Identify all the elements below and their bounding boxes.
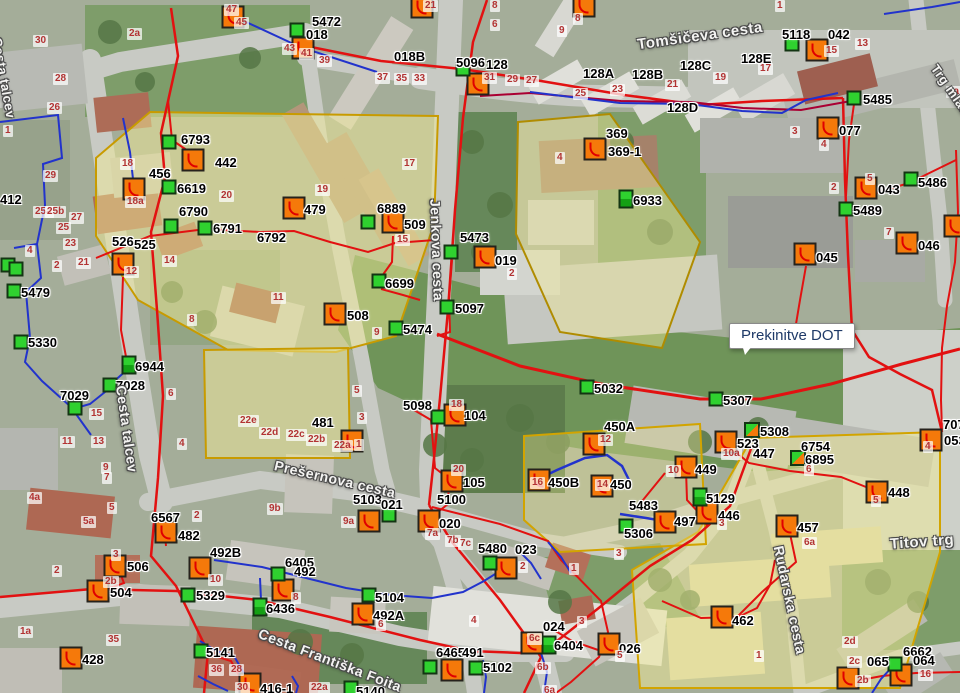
station-label: 492B xyxy=(210,545,241,560)
station-label: 5485 xyxy=(863,92,892,107)
valve-marker[interactable] xyxy=(162,180,177,195)
valve-marker[interactable] xyxy=(440,300,455,315)
station-label: 6792 xyxy=(257,230,286,245)
station-label: 450A xyxy=(604,419,635,434)
house-number-label: 18a xyxy=(125,196,146,208)
house-number-label: 6 xyxy=(490,19,500,31)
valve-marker[interactable] xyxy=(423,660,438,675)
house-number-label: 41 xyxy=(299,48,314,60)
valve-marker[interactable] xyxy=(469,661,484,676)
station-label: 497 xyxy=(674,514,696,529)
valve-marker[interactable] xyxy=(619,190,634,209)
house-number-label: 30 xyxy=(33,35,48,47)
station-label: 128B xyxy=(632,67,663,82)
street-label: Jenkova cesta xyxy=(427,199,447,302)
station-label: 456 xyxy=(149,166,171,181)
station-marker[interactable] xyxy=(495,557,518,580)
house-number-label: 4 xyxy=(177,438,187,450)
station-label: 5096 xyxy=(456,55,485,70)
house-number-label: 3 xyxy=(357,412,367,424)
station-label: 6465 xyxy=(436,645,465,660)
station-label: 5102 xyxy=(483,660,512,675)
house-number-label: 9 xyxy=(372,327,382,339)
station-label: 525 xyxy=(134,237,156,252)
station-label: 412 xyxy=(0,192,22,207)
valve-marker[interactable] xyxy=(839,202,854,217)
station-label: 6699 xyxy=(385,276,414,291)
station-label: 5100 xyxy=(437,492,466,507)
station-marker[interactable] xyxy=(60,647,83,670)
house-number-label: 29 xyxy=(43,170,58,182)
house-number-label: 5 xyxy=(352,385,362,397)
station-marker[interactable] xyxy=(352,603,375,626)
house-number-label: 22e xyxy=(238,415,259,427)
station-label: 449 xyxy=(695,462,717,477)
house-number-label: 8 xyxy=(187,314,197,326)
valve-marker[interactable] xyxy=(888,657,903,672)
street-label: Titov trg xyxy=(889,531,954,552)
house-number-label: 7 xyxy=(102,472,112,484)
station-label: 491 xyxy=(462,645,484,660)
house-number-label: 22a xyxy=(309,682,330,693)
station-label: 481 xyxy=(312,415,334,430)
house-number-label: 35 xyxy=(394,73,409,85)
station-label: 5479 xyxy=(21,285,50,300)
house-number-label: 5 xyxy=(871,495,881,507)
house-number-label: 21 xyxy=(76,257,91,269)
house-number-label: 3 xyxy=(111,549,121,561)
house-number-label: 12 xyxy=(124,266,139,278)
house-number-label: 17 xyxy=(402,158,417,170)
house-number-label: 8 xyxy=(573,13,583,25)
station-label: 369 xyxy=(606,126,628,141)
station-label: 5330 xyxy=(28,335,57,350)
house-number-label: 10 xyxy=(666,465,681,477)
house-number-label: 37 xyxy=(375,72,390,84)
station-label: 128C xyxy=(680,58,711,73)
station-label: 482 xyxy=(178,528,200,543)
house-number-label: 9 xyxy=(557,25,567,37)
station-label: 6933 xyxy=(633,193,662,208)
house-number-label: 1 xyxy=(354,439,364,451)
station-label: 046 xyxy=(918,238,940,253)
house-number-label: 1 xyxy=(569,563,579,575)
house-number-label: 18 xyxy=(449,399,464,411)
station-label: 5118 xyxy=(782,27,810,42)
valve-marker[interactable] xyxy=(181,588,196,603)
station-marker[interactable] xyxy=(182,149,205,172)
station-marker[interactable] xyxy=(324,303,347,326)
station-label: 5308 xyxy=(760,424,789,439)
house-number-label: 3 xyxy=(717,518,727,530)
station-label: 428 xyxy=(82,652,104,667)
station-marker[interactable] xyxy=(944,215,960,238)
station-label: 128D xyxy=(667,100,698,115)
house-number-label: 4 xyxy=(469,615,479,627)
station-label: 128 xyxy=(486,57,508,72)
house-number-label: 21 xyxy=(665,79,680,91)
station-marker[interactable] xyxy=(711,606,734,629)
street-label: Cesta talcev xyxy=(0,36,18,119)
station-label: 128A xyxy=(583,66,614,81)
house-number-label: 10 xyxy=(208,574,223,586)
house-number-label: 2d xyxy=(842,636,858,648)
house-number-label: 14 xyxy=(595,479,610,491)
station-label: 018 xyxy=(306,27,328,42)
valve-marker[interactable] xyxy=(389,321,404,336)
station-marker[interactable] xyxy=(441,659,464,682)
station-label: 6944 xyxy=(135,359,164,374)
house-number-label: 1a xyxy=(18,626,33,638)
house-number-label: 25b xyxy=(45,206,66,218)
station-label: 104 xyxy=(464,408,486,423)
valve-marker[interactable] xyxy=(9,262,24,277)
station-label: 450 xyxy=(610,477,632,492)
station-label: 5032 xyxy=(594,381,623,396)
station-label: 450B xyxy=(548,475,579,490)
station-marker[interactable] xyxy=(817,117,840,140)
house-number-label: 6b xyxy=(535,662,551,674)
station-label: 6793 xyxy=(181,132,210,147)
station-label: 5486 xyxy=(918,175,947,190)
valve-marker[interactable] xyxy=(904,172,919,187)
station-label: 5141 xyxy=(206,645,235,660)
house-number-label: 5a xyxy=(81,516,96,528)
station-label: 105 xyxy=(463,475,485,490)
house-number-label: 47 xyxy=(224,4,239,16)
house-number-label: 4 xyxy=(923,441,933,453)
house-number-label: 30 xyxy=(235,682,250,693)
house-number-label: 6 xyxy=(376,619,386,631)
house-number-label: 36 xyxy=(209,664,224,676)
house-number-label: 2a xyxy=(127,28,142,40)
valve-marker[interactable] xyxy=(290,23,305,38)
house-number-label: 22d xyxy=(259,427,280,439)
house-number-label: 22b xyxy=(306,434,327,446)
valve-marker[interactable] xyxy=(431,410,446,425)
house-number-label: 3 xyxy=(614,548,624,560)
station-label: 5104 xyxy=(375,590,404,605)
house-number-label: 31 xyxy=(482,72,497,84)
house-number-label: 12 xyxy=(598,434,613,446)
station-label: 509 xyxy=(404,217,426,232)
house-number-label: 21 xyxy=(423,0,438,12)
house-number-label: 2c xyxy=(847,656,862,668)
valve-marker[interactable] xyxy=(709,392,724,407)
house-number-label: 13 xyxy=(855,38,870,50)
station-label: 077 xyxy=(839,123,861,138)
valve-marker[interactable] xyxy=(164,219,179,234)
house-number-label: 23 xyxy=(63,238,78,250)
station-label: 019 xyxy=(495,253,517,268)
street-label: Prešernova cesta xyxy=(273,457,397,500)
station-label: 707 xyxy=(943,417,960,432)
valve-marker[interactable] xyxy=(847,91,862,106)
station-label: 447 xyxy=(753,446,775,461)
tooltip-text: Prekinitve DOT xyxy=(741,327,843,344)
station-label: 5483 xyxy=(629,498,658,513)
station-label: 045 xyxy=(816,250,838,265)
valve-marker[interactable] xyxy=(444,245,459,260)
house-number-label: 29 xyxy=(505,74,520,86)
house-number-label: 6a xyxy=(802,537,817,549)
house-number-label: 2 xyxy=(518,561,528,573)
street-label: Cesta talcev xyxy=(113,384,141,473)
house-number-label: 18 xyxy=(120,158,135,170)
house-number-label: 17 xyxy=(758,63,773,75)
house-number-label: 1 xyxy=(754,650,764,662)
valve-marker[interactable] xyxy=(580,380,595,395)
house-number-label: 6 xyxy=(166,388,176,400)
station-label: 5307 xyxy=(723,393,752,408)
house-number-label: 26 xyxy=(47,102,62,114)
house-number-label: 3 xyxy=(790,126,800,138)
house-number-label: 6a xyxy=(542,685,557,693)
valve-marker[interactable] xyxy=(361,215,376,230)
house-number-label: 4 xyxy=(555,152,565,164)
station-label: 020 xyxy=(439,516,461,531)
station-label: 416-1 xyxy=(260,681,293,693)
house-number-label: 25 xyxy=(56,222,71,234)
station-label: 6619 xyxy=(177,181,206,196)
station-label: 442 xyxy=(215,155,237,170)
street-label: Trg mladosti xyxy=(928,62,960,139)
station-label: 506 xyxy=(127,559,149,574)
house-number-label: 22c xyxy=(286,429,307,441)
house-number-label: 14 xyxy=(162,255,177,267)
house-number-label: 35 xyxy=(106,634,121,646)
house-number-label: 28 xyxy=(53,73,68,85)
station-label: 018B xyxy=(394,49,425,64)
station-label: 462 xyxy=(732,613,754,628)
house-number-label: 15 xyxy=(89,408,104,420)
house-number-label: 8 xyxy=(291,592,301,604)
house-number-label: 7c xyxy=(458,538,473,550)
tooltip: Prekinitve DOT xyxy=(729,323,855,349)
house-number-label: 7 xyxy=(884,227,894,239)
valve-marker[interactable] xyxy=(7,284,22,299)
station-label: 5480 xyxy=(478,541,507,556)
station-label: 448 xyxy=(888,485,910,500)
station-label: 6404 xyxy=(554,638,583,653)
station-label: 6567 xyxy=(151,510,180,525)
valve-marker[interactable] xyxy=(198,221,213,236)
house-number-label: 22a xyxy=(332,440,353,452)
station-label: 492 xyxy=(294,564,316,579)
station-label: 5329 xyxy=(196,588,225,603)
station-label: 5473 xyxy=(460,230,489,245)
house-number-label: 11 xyxy=(60,436,75,448)
station-label: 5098 xyxy=(403,398,432,413)
house-number-label: 27 xyxy=(524,75,539,87)
station-marker[interactable] xyxy=(358,510,381,533)
station-label: 023 xyxy=(515,542,537,557)
station-marker[interactable] xyxy=(794,243,817,266)
house-number-label: 2 xyxy=(52,565,62,577)
station-marker[interactable] xyxy=(283,197,306,220)
house-number-label: 4 xyxy=(25,245,35,257)
house-number-label: 4 xyxy=(819,139,829,151)
station-label: 5489 xyxy=(853,203,882,218)
house-number-label: 8 xyxy=(490,0,500,12)
house-number-label: 2 xyxy=(192,510,202,522)
house-number-label: 6c xyxy=(527,633,542,645)
house-number-label: 7a xyxy=(425,528,440,540)
house-number-label: 15 xyxy=(824,45,839,57)
house-number-label: 43 xyxy=(282,43,297,55)
house-number-label: 1 xyxy=(3,125,13,137)
house-number-label: 20 xyxy=(219,190,234,202)
house-number-label: 33 xyxy=(412,73,427,85)
house-number-label: 27 xyxy=(69,212,84,224)
station-marker[interactable] xyxy=(584,138,607,161)
station-label: 5306 xyxy=(624,526,653,541)
station-label: 064 xyxy=(913,653,935,668)
house-number-label: 45 xyxy=(234,17,249,29)
map-viewport[interactable]: 5472018018B5096128128A128B128C128D128E51… xyxy=(0,0,960,693)
house-number-label: 16 xyxy=(530,477,545,489)
station-label: 5474 xyxy=(403,322,432,337)
house-number-label: 5 xyxy=(615,650,625,662)
station-marker[interactable] xyxy=(896,232,919,255)
valve-marker[interactable] xyxy=(271,567,286,582)
house-number-label: 5 xyxy=(107,502,117,514)
house-number-label: 2 xyxy=(52,260,62,272)
valve-marker[interactable] xyxy=(162,135,177,150)
station-label: 457 xyxy=(797,520,819,535)
house-number-label: 2b xyxy=(855,675,871,687)
street-label: Tomšičeva cesta xyxy=(636,19,764,53)
house-number-label: 10a xyxy=(721,448,742,460)
house-number-label: 2b xyxy=(103,576,119,588)
station-marker[interactable] xyxy=(474,246,497,269)
station-label: 043 xyxy=(878,182,900,197)
house-number-label: 25 xyxy=(573,88,588,100)
house-number-label: 39 xyxy=(317,55,332,67)
house-number-label: 19 xyxy=(713,72,728,84)
house-number-label: 16 xyxy=(918,669,933,681)
station-label: 053 xyxy=(944,433,960,448)
house-number-label: 9a xyxy=(341,516,356,528)
valve-marker[interactable] xyxy=(14,335,29,350)
house-number-label: 11 xyxy=(271,292,286,304)
station-label: 6889 xyxy=(377,201,406,216)
house-number-label: 2 xyxy=(507,268,517,280)
house-number-label: 4a xyxy=(27,492,42,504)
house-number-label: 19 xyxy=(315,184,330,196)
station-label: 6791 xyxy=(213,221,242,236)
house-number-label: 15 xyxy=(395,234,410,246)
house-number-label: 3 xyxy=(577,616,587,628)
station-label: 508 xyxy=(347,308,369,323)
house-number-label: 23 xyxy=(610,84,625,96)
house-number-label: 5 xyxy=(865,173,875,185)
house-number-label: 1 xyxy=(775,0,785,12)
house-number-label: 28 xyxy=(229,664,244,676)
station-label: 369-1 xyxy=(608,144,641,159)
house-number-label: 2 xyxy=(829,182,839,194)
street-label: Rudarska cesta xyxy=(771,544,810,655)
house-number-label: 20 xyxy=(451,464,466,476)
station-label: 024 xyxy=(543,619,565,634)
house-number-label: 9b xyxy=(267,503,283,515)
station-marker[interactable] xyxy=(776,515,799,538)
station-label: 479 xyxy=(304,202,326,217)
house-number-label: 13 xyxy=(91,436,106,448)
station-label: 5097 xyxy=(455,301,484,316)
station-label: 5129 xyxy=(706,491,735,506)
house-number-label: 6 xyxy=(804,464,814,476)
station-label: 7029 xyxy=(60,388,89,403)
station-label: 065 xyxy=(867,654,889,669)
station-label: 526 xyxy=(112,234,134,249)
station-label: 042 xyxy=(828,27,850,42)
valve-marker[interactable] xyxy=(483,556,498,571)
station-label: 6790 xyxy=(179,204,208,219)
